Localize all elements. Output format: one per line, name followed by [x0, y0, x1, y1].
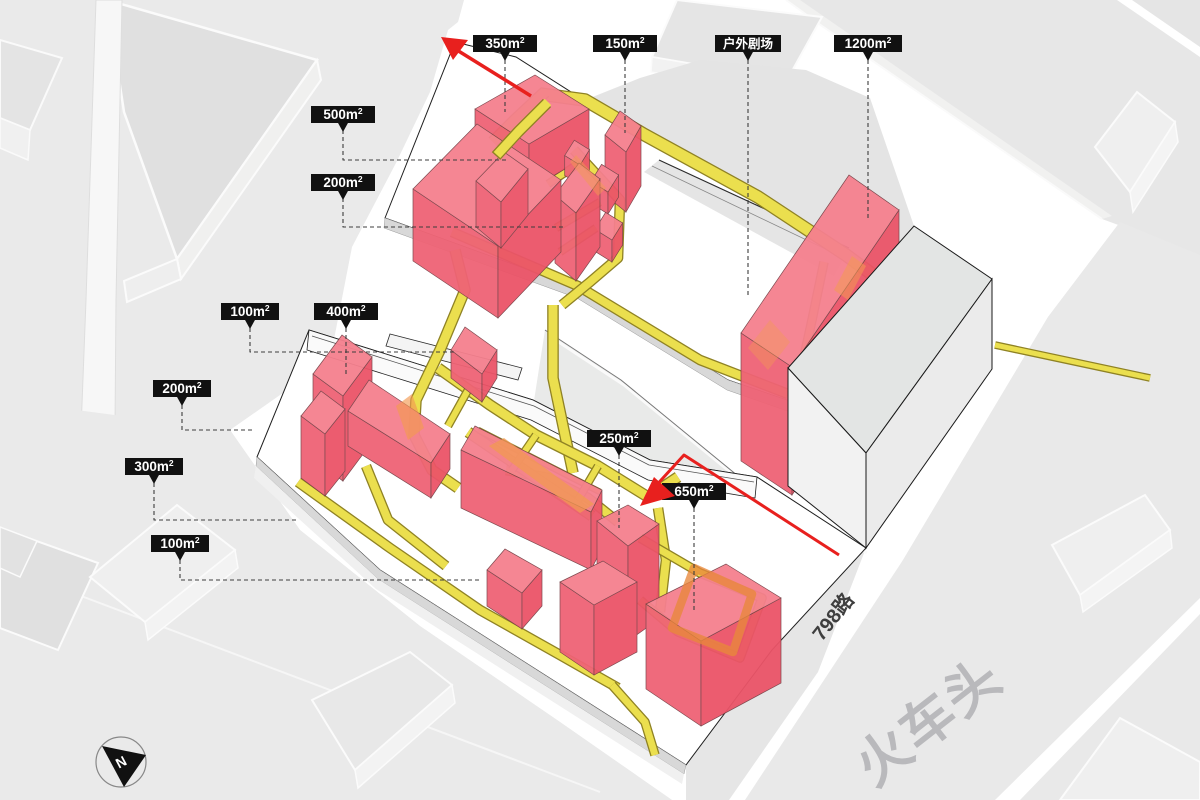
- svg-text:400m2: 400m2: [326, 303, 366, 319]
- svg-text:200m2: 200m2: [162, 380, 202, 396]
- svg-text:1200m2: 1200m2: [845, 35, 892, 51]
- svg-text:200m2: 200m2: [323, 174, 363, 190]
- svg-text:100m2: 100m2: [230, 303, 270, 319]
- svg-text:100m2: 100m2: [160, 535, 200, 551]
- svg-text:250m2: 250m2: [599, 430, 639, 446]
- svg-text:户外剧场: 户外剧场: [723, 36, 773, 51]
- svg-text:650m2: 650m2: [674, 483, 714, 499]
- svg-text:500m2: 500m2: [323, 106, 363, 122]
- svg-text:350m2: 350m2: [485, 35, 525, 51]
- svg-text:300m2: 300m2: [134, 458, 174, 474]
- svg-text:150m2: 150m2: [605, 35, 645, 51]
